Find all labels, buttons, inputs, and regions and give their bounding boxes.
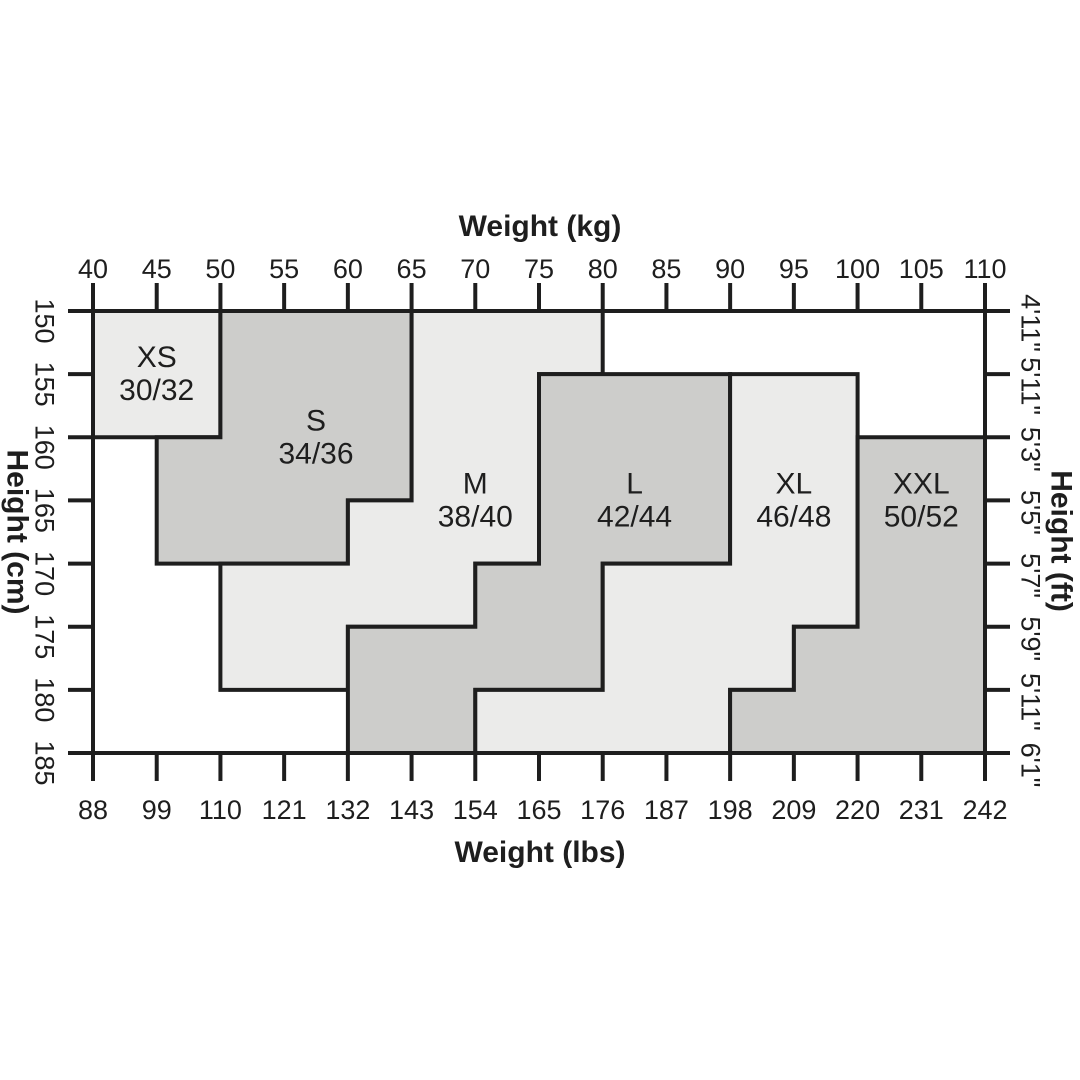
bottom-tick-label: 121	[262, 795, 307, 825]
left-tick-label: 185	[30, 740, 60, 785]
bottom-tick-label: 209	[771, 795, 816, 825]
bottom-tick-label: 154	[453, 795, 498, 825]
bottom-tick-label: 110	[199, 795, 242, 825]
top-tick-label: 95	[779, 254, 809, 284]
top-tick-label: 50	[205, 254, 235, 284]
top-tick-label: 70	[460, 254, 490, 284]
right-tick-label: 5'5"	[1016, 490, 1046, 535]
top-tick-label: 80	[588, 254, 618, 284]
left-axis-title: Height (cm)	[1, 450, 34, 615]
region-label-s: S	[306, 404, 326, 437]
top-axis-title: Weight (kg)	[0, 212, 1080, 242]
top-tick-label: 90	[715, 254, 745, 284]
top-tick-label: 105	[899, 254, 944, 284]
region-label-m: M	[463, 467, 488, 500]
top-tick-label: 75	[524, 254, 554, 284]
region-sublabel-xs: 30/32	[119, 374, 194, 407]
top-tick-label: 40	[78, 254, 108, 284]
top-tick-label: 65	[397, 254, 427, 284]
left-tick-label: 180	[30, 677, 60, 722]
right-tick-label: 6'1"	[1016, 743, 1046, 788]
right-tick-label: 5'3"	[1016, 427, 1046, 472]
bottom-tick-label: 187	[644, 795, 689, 825]
right-tick-label: 5'11"	[1016, 357, 1046, 415]
region-sublabel-xxl: 50/52	[884, 500, 959, 533]
right-tick-label: 5'11"	[1016, 673, 1046, 731]
bottom-tick-label: 198	[708, 795, 753, 825]
right-tick-label: 5'7"	[1016, 553, 1046, 598]
bottom-tick-label: 231	[899, 795, 944, 825]
top-tick-label: 60	[333, 254, 363, 284]
region-sublabel-s: 34/36	[278, 437, 353, 470]
bottom-axis-title: Weight (lbs)	[0, 838, 1080, 868]
region-label-xxl: XXL	[893, 467, 950, 500]
bottom-tick-label: 220	[835, 795, 880, 825]
left-tick-label: 155	[30, 362, 60, 407]
right-axis-title: Height (ft)	[1045, 470, 1078, 612]
bottom-tick-label: 242	[962, 795, 1007, 825]
right-tick-label: 5'9"	[1016, 616, 1046, 661]
bottom-tick-label: 143	[389, 795, 434, 825]
right-tick-label: 4'11"	[1016, 294, 1046, 352]
bottom-tick-label: 88	[78, 795, 108, 825]
region-sublabel-l: 42/44	[597, 500, 672, 533]
top-tick-label: 45	[142, 254, 172, 284]
bottom-tick-label: 132	[325, 795, 370, 825]
bottom-tick-label: 176	[580, 795, 625, 825]
size-chart-plot: 4088459950110551216013265143701547516580…	[0, 0, 1080, 1080]
top-tick-label: 85	[651, 254, 681, 284]
region-sublabel-xl: 46/48	[756, 500, 831, 533]
bottom-tick-label: 165	[516, 795, 561, 825]
region-label-xl: XL	[776, 467, 813, 500]
top-tick-label: 110	[963, 254, 1006, 284]
region-label-l: L	[626, 467, 643, 500]
region-label-xs: XS	[137, 341, 177, 374]
size-chart-page: 4088459950110551216013265143701547516580…	[0, 0, 1080, 1080]
bottom-tick-label: 99	[142, 795, 172, 825]
top-tick-label: 100	[835, 254, 880, 284]
left-tick-label: 150	[30, 298, 60, 343]
top-tick-label: 55	[269, 254, 299, 284]
left-tick-label: 175	[30, 614, 60, 659]
region-sublabel-m: 38/40	[438, 500, 513, 533]
